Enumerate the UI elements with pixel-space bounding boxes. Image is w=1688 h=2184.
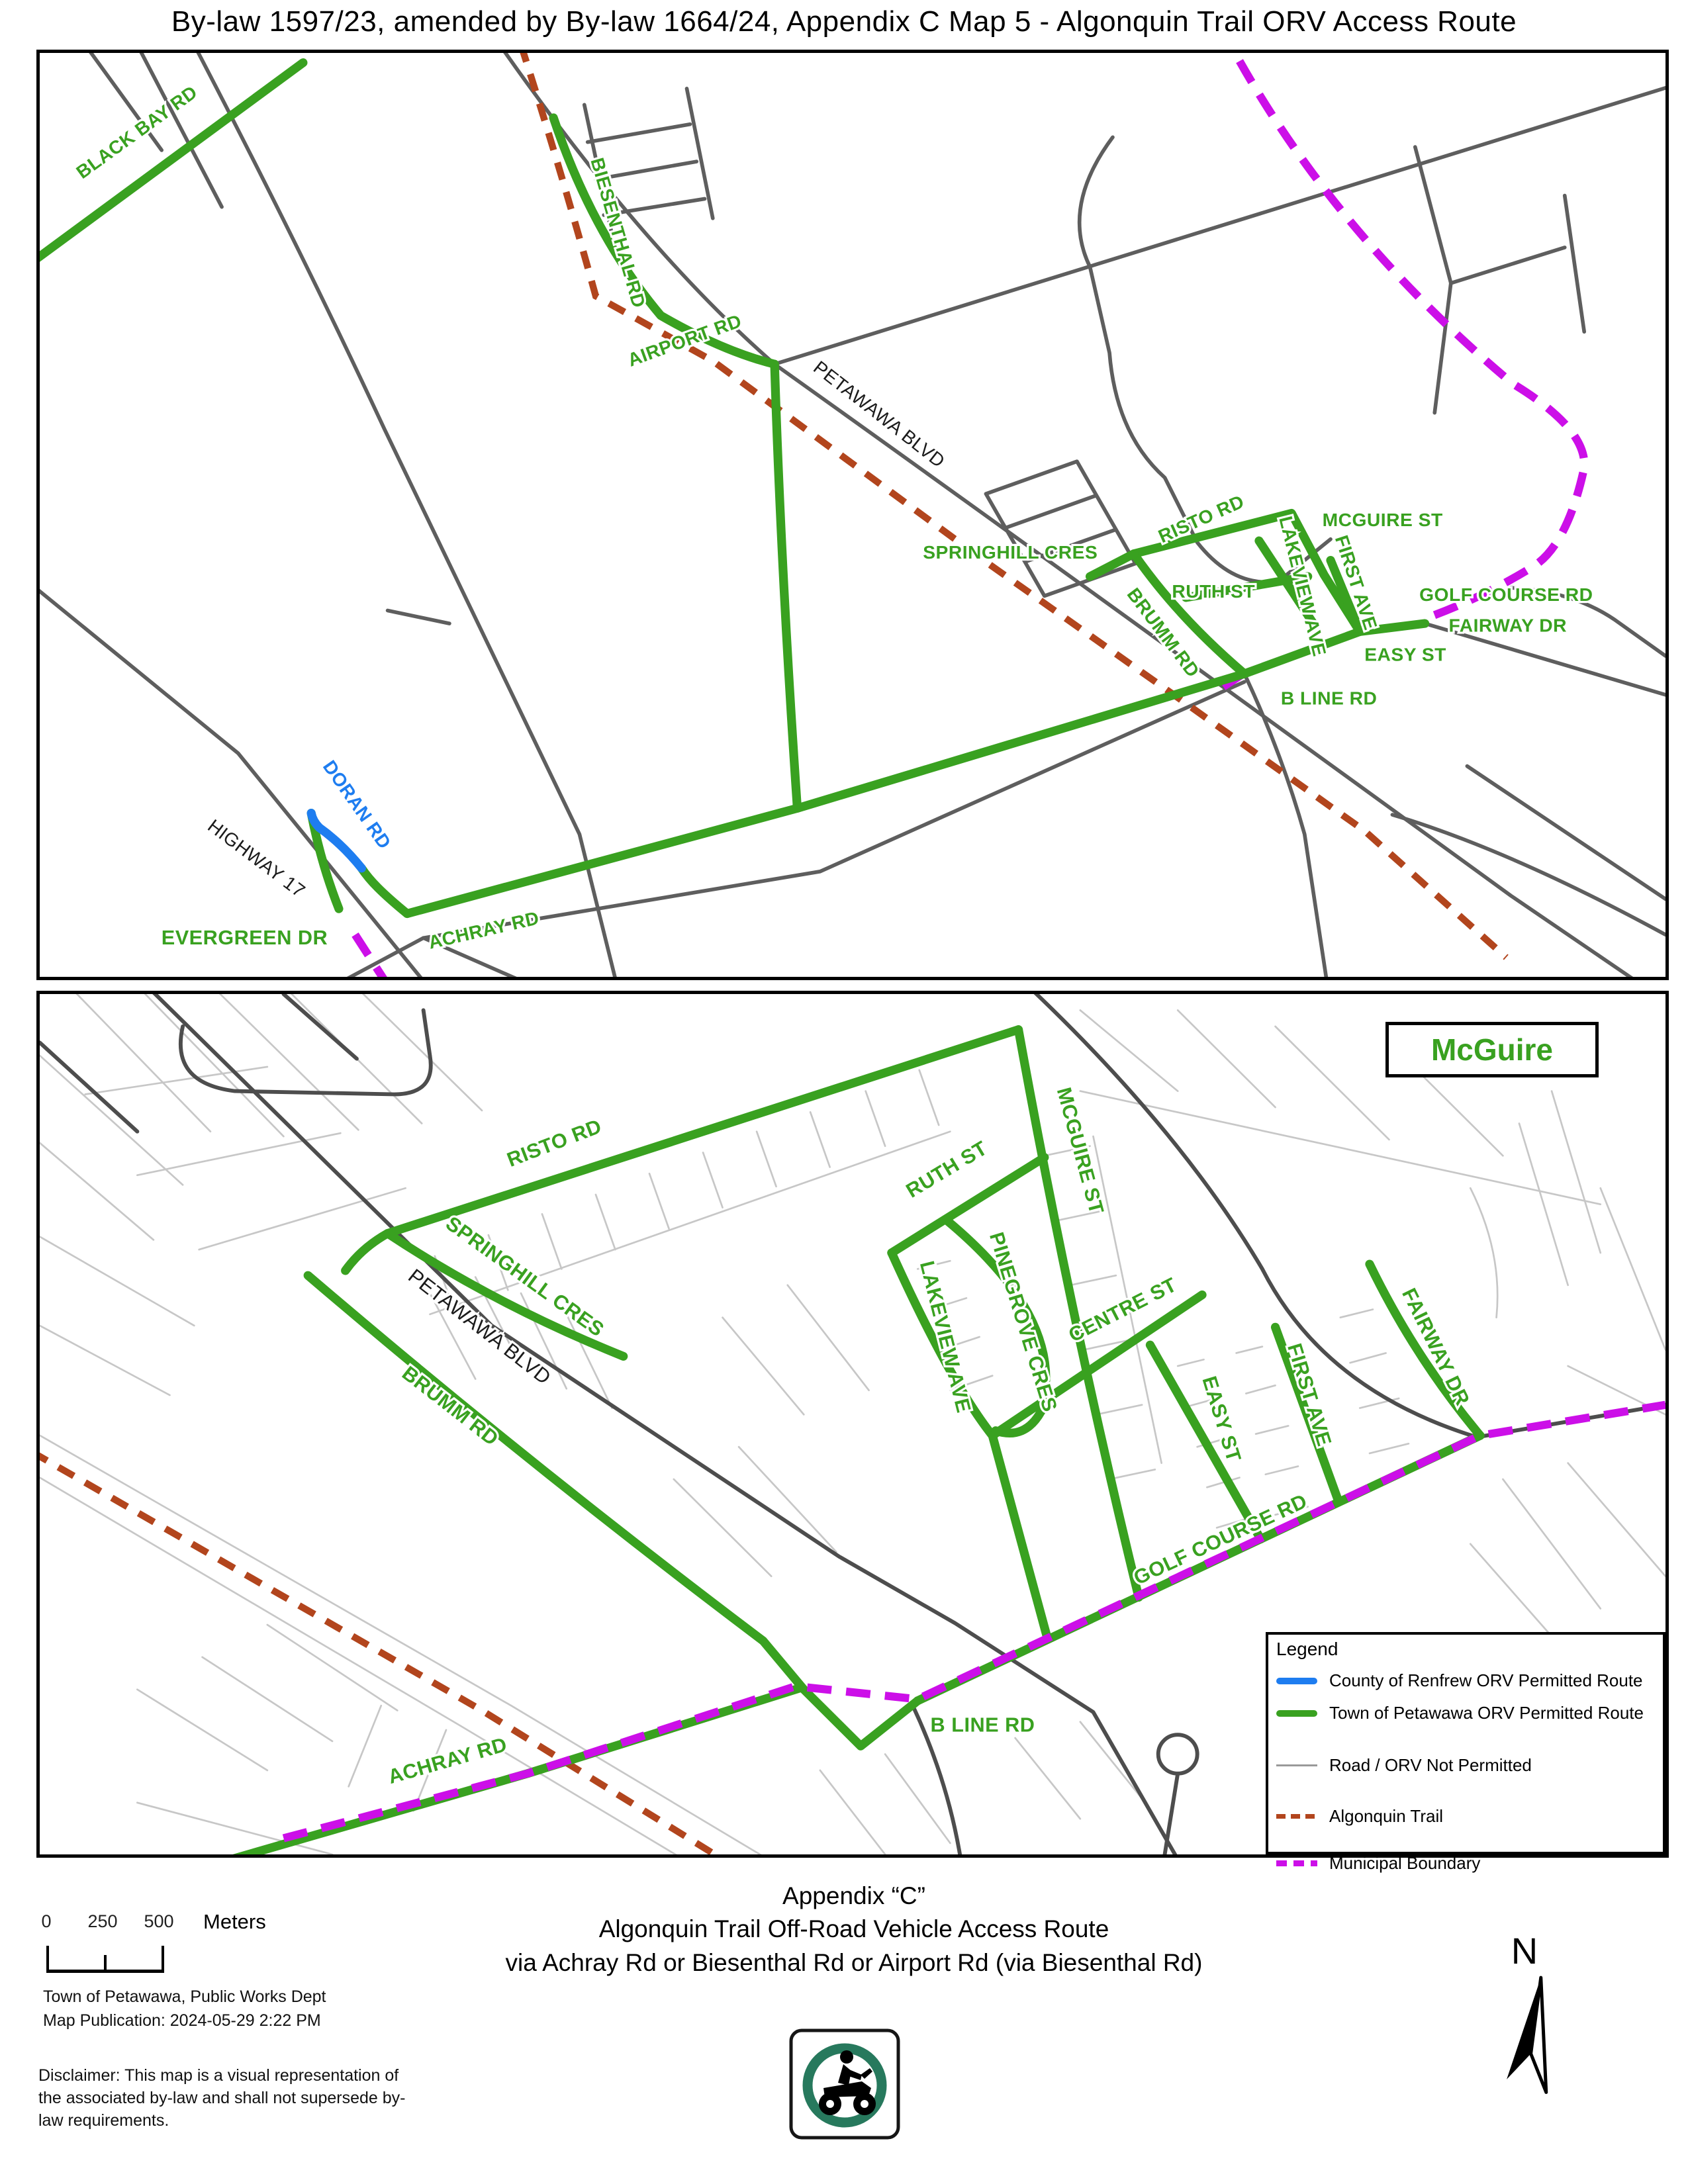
scale-unit: Meters (203, 1910, 266, 1934)
street-label-mcguire-st: MCGUIRE ST (1053, 1085, 1108, 1217)
legend-item-county-route: County of Renfrew ORV Permitted Route (1276, 1670, 1663, 1691)
scale-tick-500: 500 (144, 1911, 173, 1932)
road-b-line (1244, 674, 1327, 977)
street-label-pinegrove-cres: PINEGROVE CRES (985, 1230, 1061, 1414)
street-label-lakeview-ave: LAKEVIEW AVE (915, 1259, 975, 1415)
blue-route-swatch-icon (1276, 1678, 1317, 1684)
street-label-golf-course-rd: GOLF COURSE RD (1130, 1490, 1311, 1589)
gray-road-swatch-icon (1276, 1764, 1317, 1766)
attribution-line1: Town of Petawawa, Public Works Dept (43, 1985, 326, 2009)
street-label-springhill-cres: SPRINGHILL CRES (923, 541, 1098, 563)
algonquin-trail-line (521, 53, 1506, 958)
street-label-fairway-dr: FAIRWAY DR (1449, 614, 1568, 635)
legend-item-municipal-boundary: Municipal Boundary (1276, 1853, 1663, 1874)
legend: Legend County of Renfrew ORV Permitted R… (1266, 1632, 1665, 1854)
legend-item-town-route: Town of Petawawa ORV Permitted Route (1276, 1703, 1663, 1723)
street-label-b-line-rd: B LINE RD (1281, 688, 1378, 709)
inset-title: McGuire (1431, 1032, 1553, 1068)
magenta-dashed-swatch-icon (1276, 1860, 1317, 1866)
scale-tick-250: 250 (87, 1911, 117, 1932)
street-label-centre-st: CENTRE ST (1065, 1273, 1180, 1347)
street-label-b-line-rd: B LINE RD (931, 1713, 1035, 1736)
north-label: N (1511, 1930, 1538, 1972)
brown-dashed-swatch-icon (1276, 1814, 1317, 1819)
street-label-ruth-st: RUTH ST (902, 1137, 991, 1203)
street-label-brumm-rd: BRUMM RD (398, 1362, 502, 1451)
appendix-caption: Appendix “C” Algonquin Trail Off-Road Ve… (424, 1880, 1284, 1979)
north-arrow-icon: N (1473, 1916, 1599, 2108)
route-achray-rd (407, 674, 1244, 913)
overview-map-canvas: BLACK BAY RD BIESENTHAL RD AIRPORT RD PE… (40, 53, 1665, 977)
legend-item-algonquin-trail: Algonquin Trail (1276, 1806, 1663, 1827)
street-label-easy-st: EASY ST (1197, 1373, 1245, 1465)
street-label-highway-17: HIGHWAY 17 (204, 815, 309, 901)
scale-tick-0: 0 (41, 1911, 51, 1932)
scale-bar: 0 250 500 Meters (36, 1911, 261, 1984)
atv-rider-permit-sign-icon (788, 2027, 902, 2141)
map-overview-panel: BLACK BAY RD BIESENTHAL RD AIRPORT RD PE… (36, 50, 1669, 980)
map-mcguire-inset-panel: RISTO RD SPRINGHILL CRES PETAWAWA BLVD B… (36, 991, 1669, 1858)
legend-item-road-not-permitted: Road / ORV Not Permitted (1276, 1755, 1663, 1776)
disclaimer-text: Disclaimer: This map is a visual represe… (38, 2065, 409, 2132)
algonquin-trail-line-inset (40, 1452, 723, 1854)
street-label-fairway-dr: FAIRWAY DR (1397, 1285, 1474, 1409)
scale-bar-rule (46, 1946, 164, 1973)
orv-permitted-routes (40, 63, 1425, 914)
street-label-risto-rd: RISTO RD (504, 1115, 604, 1171)
road-highway-17 (40, 584, 427, 977)
street-label-golf-course-rd: GOLF COURSE RD (1419, 584, 1593, 605)
appendix-line1: Appendix “C” (424, 1880, 1284, 1913)
page-title: By-law 1597/23, amended by By-law 1664/2… (0, 5, 1688, 38)
street-label-petawawa-blvd: PETAWAWA BLVD (810, 357, 949, 472)
bylaw-map-page: By-law 1597/23, amended by By-law 1664/2… (0, 0, 1688, 2184)
inset-title-box: McGuire (1385, 1022, 1599, 1077)
route-brumm-rd (308, 1275, 917, 1746)
attribution-line2: Map Publication: 2024-05-29 2:22 PM (43, 2009, 326, 2033)
street-label-evergreen-dr: EVERGREEN DR (162, 927, 328, 949)
route-airport-rd (774, 364, 797, 808)
green-route-swatch-icon (1276, 1710, 1317, 1717)
route-easy-st (1150, 1345, 1260, 1539)
legend-title: Legend (1276, 1639, 1663, 1660)
attribution: Town of Petawawa, Public Works Dept Map … (43, 1985, 326, 2032)
road-petawawa-blvd (774, 364, 1665, 977)
street-label-achray-rd: ACHRAY RD (426, 907, 541, 952)
street-label-ruth-st: RUTH ST (1172, 580, 1255, 602)
appendix-line3: via Achray Rd or Biesenthal Rd or Airpor… (424, 1946, 1284, 1979)
street-label-easy-st: EASY ST (1364, 643, 1446, 664)
appendix-line2: Algonquin Trail Off-Road Vehicle Access … (424, 1913, 1284, 1946)
street-label-mcguire-st: MCGUIRE ST (1323, 509, 1443, 530)
